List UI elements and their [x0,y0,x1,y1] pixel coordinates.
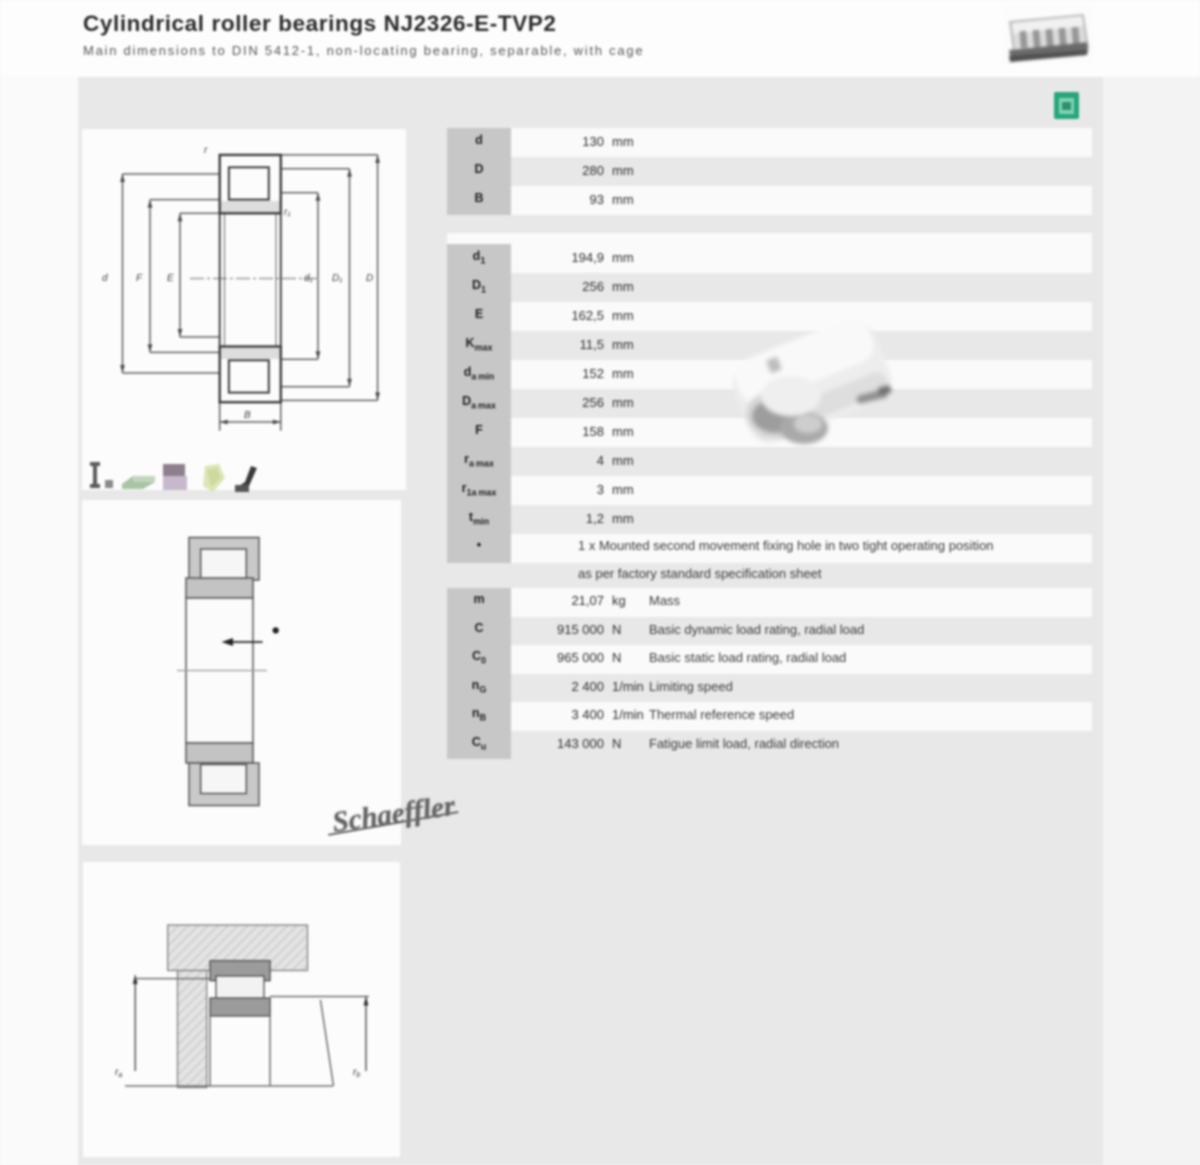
svg-text:D: D [366,273,373,284]
svg-text:D₁: D₁ [332,273,342,284]
svg-text:r₁: r₁ [284,207,290,218]
svg-text:d₁: d₁ [304,273,313,284]
svg-text:E: E [167,273,174,284]
svg-text:d: d [102,273,108,284]
svg-text:F: F [136,273,143,284]
svg-text:ra: ra [115,1067,122,1079]
svg-text:rb: rb [353,1067,360,1079]
svg-text:r: r [204,145,208,156]
svg-text:B: B [244,410,251,421]
